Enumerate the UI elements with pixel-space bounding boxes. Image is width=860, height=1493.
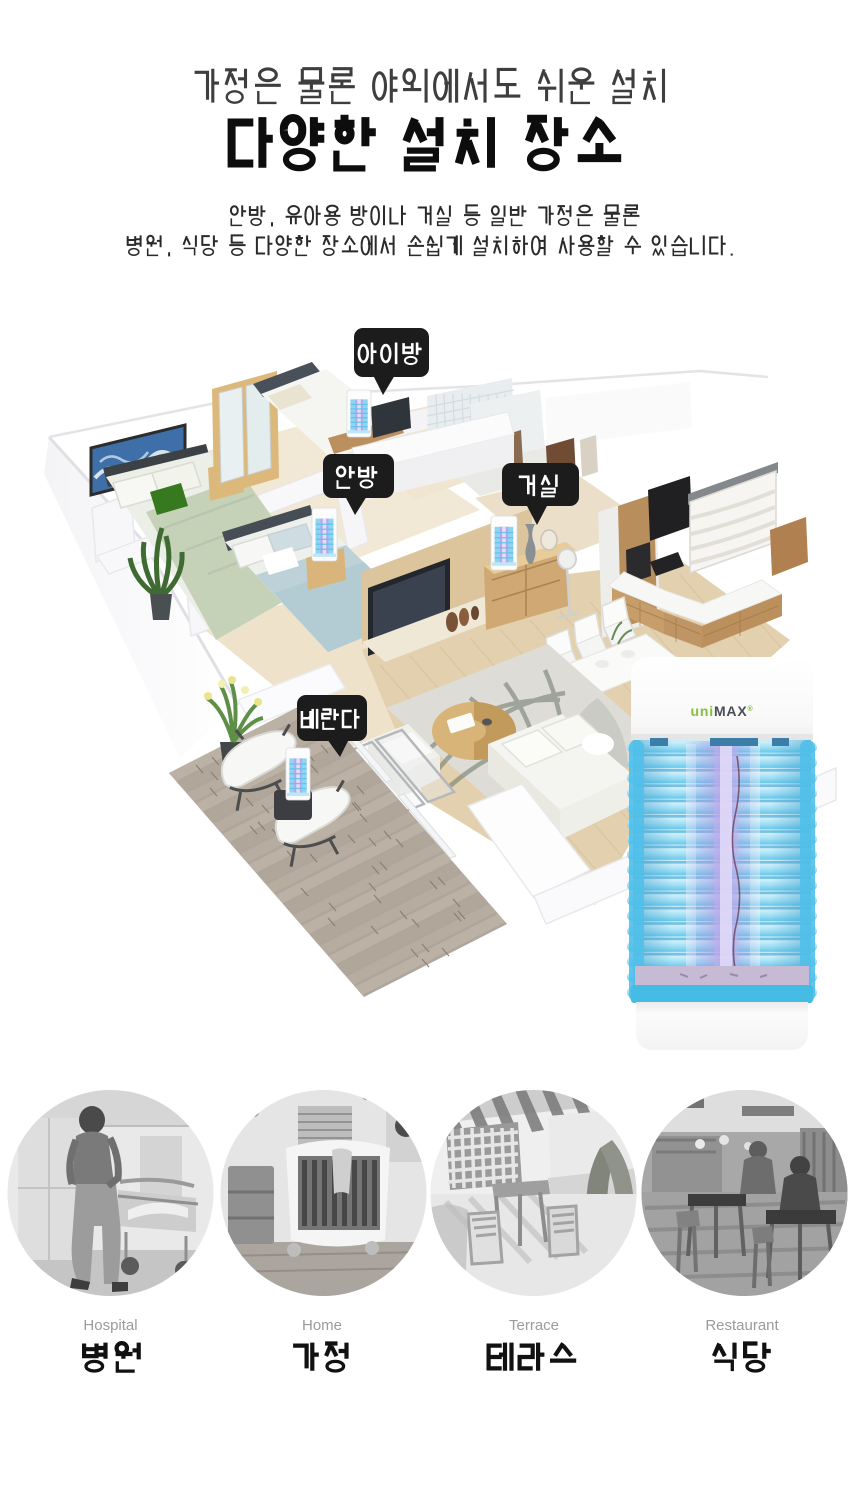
svg-text:Home: Home [302, 1317, 342, 1334]
svg-text:Terrace: Terrace [509, 1317, 559, 1334]
svg-text:Hospital: Hospital [83, 1317, 137, 1334]
svg-text:uniMAX®: uniMAX® [691, 703, 754, 719]
svg-text:Restaurant: Restaurant [705, 1317, 779, 1334]
